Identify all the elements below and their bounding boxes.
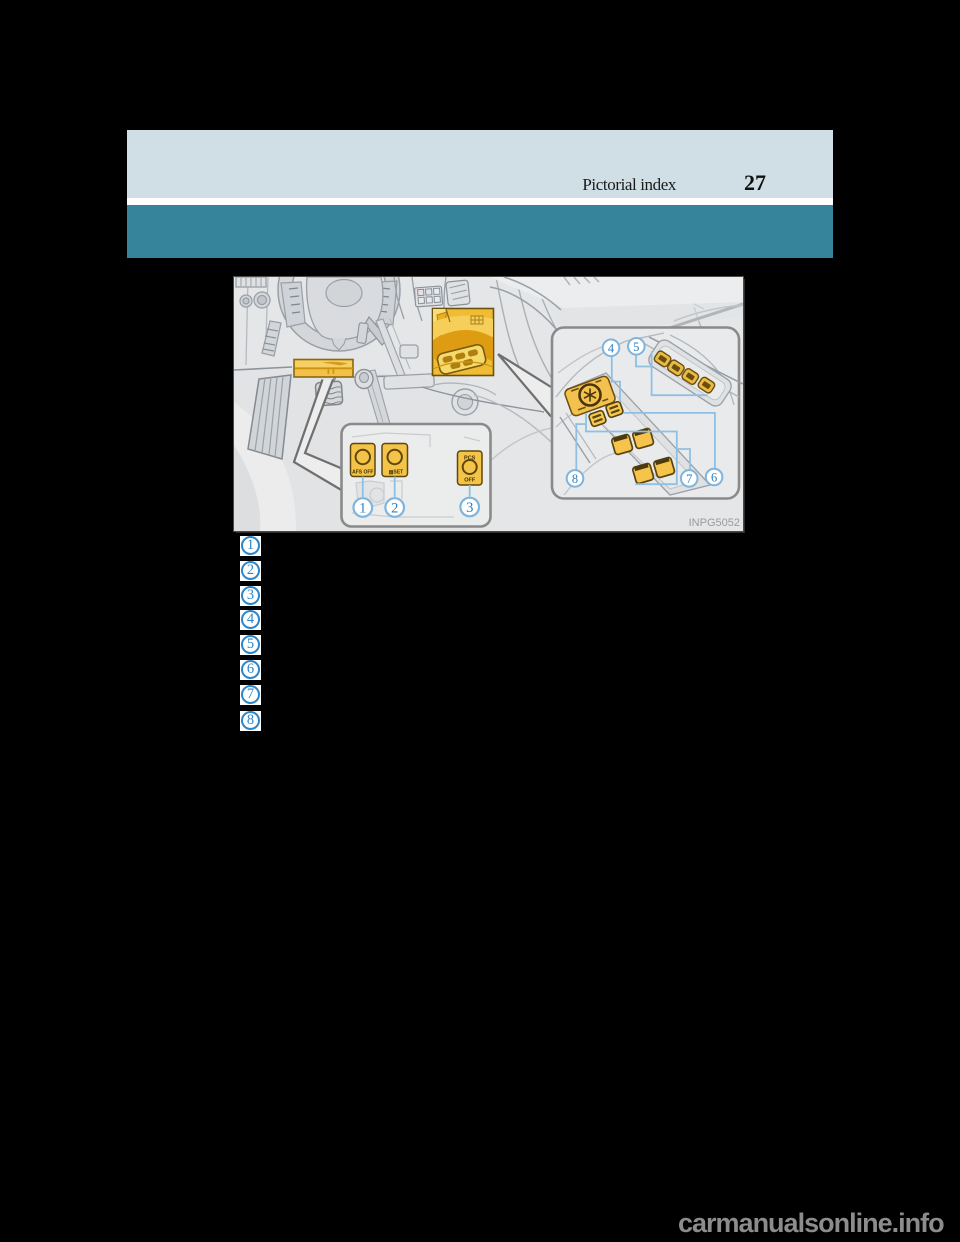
svg-text:6: 6 bbox=[711, 471, 717, 485]
svg-text:1: 1 bbox=[359, 501, 366, 517]
svg-text:3: 3 bbox=[466, 500, 473, 516]
svg-text:7: 7 bbox=[686, 472, 692, 486]
svg-text:INPG5052: INPG5052 bbox=[689, 517, 740, 529]
svg-text:AFS OFF: AFS OFF bbox=[352, 470, 373, 476]
svg-text:8: 8 bbox=[572, 472, 578, 486]
svg-text:OFF: OFF bbox=[464, 478, 476, 484]
svg-text:2: 2 bbox=[391, 501, 398, 517]
svg-text:▤SET: ▤SET bbox=[389, 470, 403, 476]
svg-text:5: 5 bbox=[633, 340, 639, 354]
svg-text:4: 4 bbox=[608, 341, 615, 355]
